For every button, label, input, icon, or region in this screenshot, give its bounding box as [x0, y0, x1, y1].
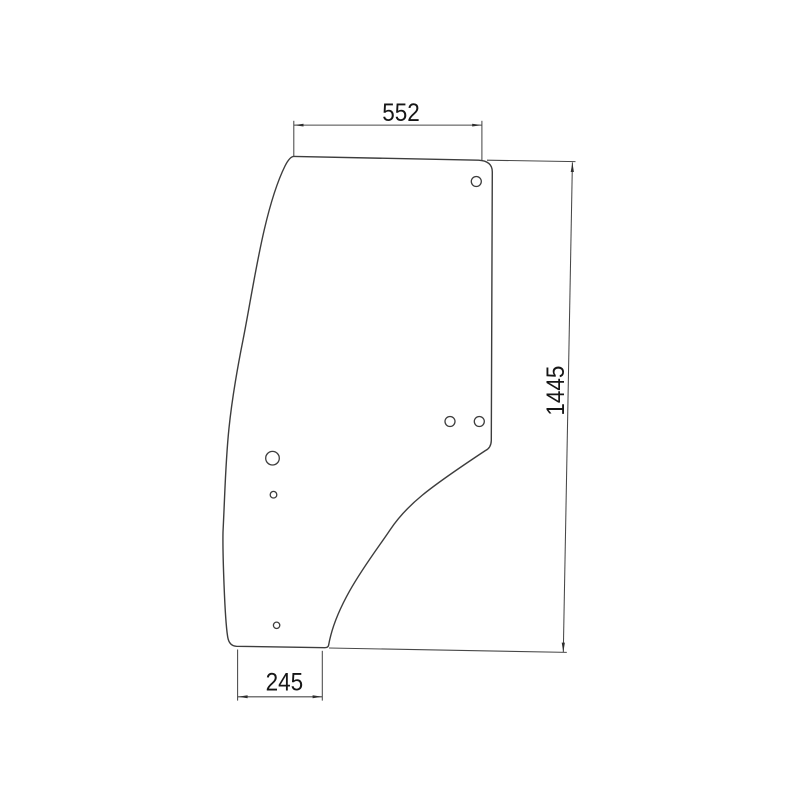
svg-text:245: 245 — [266, 669, 304, 697]
svg-text:552: 552 — [382, 99, 420, 127]
svg-text:1445: 1445 — [542, 366, 570, 416]
